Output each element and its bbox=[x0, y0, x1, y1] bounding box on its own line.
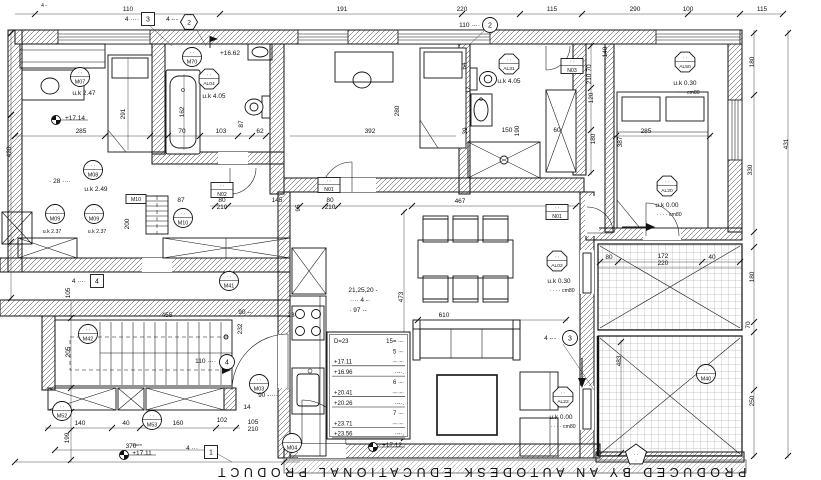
stair-table-level: +16.96 bbox=[334, 370, 353, 376]
marker-M70: · ·M70 bbox=[183, 48, 202, 67]
svg-text:M52: M52 bbox=[57, 413, 68, 419]
window-1 bbox=[58, 30, 150, 44]
svg-text:· ·: · · bbox=[181, 212, 186, 218]
annotation-text: 483 bbox=[616, 355, 623, 366]
stair-table-note: ·-··-· bbox=[392, 360, 404, 366]
svg-text:· ·: · · bbox=[327, 179, 332, 185]
annotation-text: 95 bbox=[295, 204, 302, 212]
marker-1: 1 bbox=[205, 446, 218, 459]
annotation-text: 180 bbox=[749, 271, 756, 282]
annotation-text: 210 bbox=[586, 73, 593, 84]
svg-text:· ·: · · bbox=[561, 391, 566, 397]
svg-text:AL04: AL04 bbox=[203, 81, 215, 87]
stair-table-level: +17.11 bbox=[334, 360, 353, 366]
svg-text:N01: N01 bbox=[552, 214, 562, 220]
marker-M08: · ·M08 bbox=[84, 161, 103, 180]
annotation-text: 467 bbox=[455, 198, 466, 205]
window-4 bbox=[656, 30, 740, 44]
stair-table-level: +20.26 bbox=[334, 401, 353, 407]
annotation-text: u.k 4.05 bbox=[497, 78, 521, 85]
bed-single-2 bbox=[420, 48, 466, 148]
annotation-text: 387 bbox=[617, 136, 624, 147]
stair-table-level: +23.56 bbox=[334, 432, 353, 438]
svg-text:· ·: · · bbox=[555, 206, 560, 212]
annotation-text: 190 bbox=[514, 125, 521, 136]
annotation-text: 232 bbox=[237, 323, 244, 334]
annotation-text: 87 bbox=[177, 197, 185, 204]
stair-table-note: 5 ·-· bbox=[393, 349, 404, 355]
svg-text:· ·: · · bbox=[704, 368, 709, 374]
annotation-text: 110 bbox=[123, 6, 134, 13]
marker-M42: · ·M42 bbox=[79, 325, 98, 344]
annotation-text: 80 bbox=[218, 197, 226, 204]
svg-text:4: 4 bbox=[225, 360, 229, 367]
annotation-text: 40 bbox=[708, 254, 716, 261]
stair-table-level: +23.71 bbox=[334, 421, 353, 427]
svg-text:· ·: · · bbox=[290, 437, 295, 443]
svg-text:· ·: · · bbox=[507, 58, 512, 64]
marker-N03: · ·N03 bbox=[561, 59, 583, 74]
annotation-text: · 97 ·- bbox=[349, 307, 366, 314]
annotation-text: 14 bbox=[243, 404, 251, 411]
annotation-text: 140 bbox=[75, 420, 86, 427]
annotation-text: 103 bbox=[216, 128, 227, 135]
marker-M09: · ·M09 bbox=[85, 205, 104, 224]
annotation-text: 87 bbox=[238, 120, 245, 128]
annotation-text: 140 bbox=[602, 46, 609, 57]
annotation-text: 70 bbox=[178, 128, 186, 135]
svg-text:M04: M04 bbox=[287, 445, 298, 451]
annotation-text: 90 -···· bbox=[258, 392, 278, 399]
marker-AL02: · ·AL02 bbox=[547, 251, 567, 271]
marker-2: 2 bbox=[181, 15, 198, 30]
annotation-text: · · · · cm80 bbox=[674, 90, 699, 96]
svg-text:M40: M40 bbox=[701, 376, 712, 382]
annotation-text: 39 bbox=[462, 127, 469, 135]
svg-text:M07: M07 bbox=[75, 79, 86, 85]
annotation-text: · 28 ···· bbox=[49, 178, 71, 185]
watermark-text: PRODUCED BY AN AUTODESK EDUCATIONAL PROD… bbox=[214, 465, 747, 479]
annotation-text: 473 bbox=[398, 291, 405, 302]
marker-4: 4 bbox=[91, 275, 104, 288]
stair-table-note: ··-·. bbox=[394, 401, 404, 407]
svg-text:2: 2 bbox=[187, 19, 191, 26]
annotation-text: 210 bbox=[248, 426, 259, 433]
bed-single-1 bbox=[108, 55, 152, 152]
annotation-text: u.k 0.00 bbox=[549, 414, 573, 421]
annotation-text: · · · · cm80 bbox=[656, 212, 681, 218]
marker-AL50: · ·AL50 bbox=[675, 52, 695, 72]
annotation-text: 120 bbox=[588, 92, 595, 103]
dining-table bbox=[418, 240, 513, 278]
annotation-text: +17.12 bbox=[382, 442, 402, 449]
stair-table-level: D=23 bbox=[334, 339, 349, 345]
svg-text:· ·: · · bbox=[92, 208, 97, 214]
annotation-text: 70 bbox=[586, 64, 593, 72]
marker-M10: M10 bbox=[126, 195, 146, 204]
marker-M52: · ·M52 bbox=[53, 402, 72, 421]
svg-text:· ·: · · bbox=[78, 71, 83, 77]
annotation-text: u.k 2.49 bbox=[84, 186, 108, 193]
annotation-text: +17.14 bbox=[65, 115, 85, 122]
annotation-text: 290 bbox=[630, 6, 641, 13]
marker-M07: · ·M07 bbox=[71, 68, 90, 87]
annotation-text: · · · · cm80 bbox=[550, 424, 575, 430]
annotation-text: ···· 4 -· bbox=[350, 297, 370, 304]
annotation-text: u.k 2.47 bbox=[72, 90, 96, 97]
marker-N02: · ·N02 bbox=[211, 183, 233, 198]
marker-4: 4 bbox=[220, 355, 235, 370]
annotation-text: 180 bbox=[749, 56, 756, 67]
annotation-text: 210 bbox=[217, 204, 228, 211]
svg-text:1: 1 bbox=[209, 450, 213, 457]
annotation-text: 180 bbox=[590, 133, 597, 144]
stair-table-note: ·-··-· bbox=[392, 391, 404, 397]
terrace-upper bbox=[598, 244, 742, 330]
svg-text:· ·: · · bbox=[570, 60, 575, 66]
annotation-text: 145 bbox=[272, 197, 283, 204]
svg-text:3: 3 bbox=[146, 17, 150, 24]
annotation-text: 455 bbox=[162, 312, 173, 319]
annotation-text: 285 bbox=[76, 128, 87, 135]
annotation-text: 102 bbox=[217, 417, 228, 424]
annotation-text: u.k 4.05 bbox=[202, 93, 226, 100]
annotation-text: 64 bbox=[461, 62, 468, 70]
stair-table-note: ··-·. bbox=[394, 432, 404, 438]
svg-text:· ·: · · bbox=[220, 184, 225, 190]
svg-text:· ·: · · bbox=[227, 275, 232, 281]
annotation-text: 370 bbox=[126, 443, 137, 450]
marker-N01: · ·N01 bbox=[546, 205, 568, 220]
svg-text:2: 2 bbox=[488, 23, 492, 30]
marker-3: 3 bbox=[563, 331, 578, 346]
annotation-text: 23 bbox=[287, 312, 295, 319]
annotation-text: 115 bbox=[757, 6, 768, 13]
svg-text:M09: M09 bbox=[50, 216, 61, 222]
marker-M41: · ·M41 bbox=[220, 272, 239, 291]
annotation-text: 285 bbox=[641, 128, 652, 135]
annotation-text: 40 bbox=[122, 420, 130, 427]
annotation-text: u.k 0.00 bbox=[655, 202, 679, 209]
annotation-text: 4 ···· bbox=[125, 16, 139, 23]
svg-text:AL20: AL20 bbox=[661, 188, 673, 194]
annotation-text: 62 bbox=[256, 128, 264, 135]
svg-text:· ·: · · bbox=[555, 255, 560, 261]
stair-table-note: 7 ·-· bbox=[393, 411, 404, 417]
annotation-text: 80 bbox=[605, 254, 613, 261]
annotation-text: 250 bbox=[749, 395, 756, 406]
annotation-text: 199 bbox=[64, 432, 71, 443]
svg-text:M53: M53 bbox=[147, 422, 158, 428]
floor-plan-page: D=2315= ·-·5 ·-·+17.11·-··-·+16.96··-·.6… bbox=[0, 0, 821, 480]
svg-text:· ·: · · bbox=[665, 180, 670, 186]
svg-text:M10: M10 bbox=[178, 220, 189, 226]
annotation-text: 200 bbox=[124, 218, 131, 229]
stair-table-note: 15= ·-· bbox=[386, 339, 404, 345]
annotation-text: 80 bbox=[326, 197, 334, 204]
annotation-text: 4 -·- bbox=[166, 16, 178, 23]
annotation-text: 220 bbox=[457, 6, 468, 13]
svg-text:· ·: · · bbox=[257, 378, 262, 384]
svg-text:· ·: · · bbox=[91, 164, 96, 170]
annotation-text: 150 bbox=[502, 127, 513, 134]
annotation-text: 280 bbox=[394, 105, 401, 116]
annotation-text: 610 bbox=[439, 312, 450, 319]
annotation-text: 4 ··· bbox=[186, 445, 198, 452]
svg-text:N03: N03 bbox=[567, 68, 577, 74]
annotation-text: 210 bbox=[325, 204, 336, 211]
svg-text:M10: M10 bbox=[131, 197, 141, 203]
annotation-text: u.k 0.30 bbox=[673, 80, 697, 87]
svg-text:· ·: · · bbox=[190, 51, 195, 57]
annotation-text: 110 ·-·· bbox=[195, 358, 216, 365]
svg-text:· ·: · · bbox=[683, 56, 688, 62]
annotation-text: u.k 2.37 bbox=[43, 229, 62, 235]
annotation-text: 420 bbox=[6, 146, 13, 157]
annotation-text: 90 --· bbox=[238, 309, 254, 316]
annotation-text: +17.11 bbox=[132, 450, 152, 457]
annotation-text: 17 bbox=[465, 86, 472, 94]
svg-text:AL31: AL31 bbox=[503, 66, 515, 72]
marker-AL04: · ·AL04 bbox=[199, 69, 219, 89]
svg-text:M09: M09 bbox=[89, 216, 100, 222]
annotation-text: 110 ·-·· bbox=[459, 22, 480, 29]
svg-text:· ·: · · bbox=[53, 208, 58, 214]
terrace-lower bbox=[598, 336, 742, 456]
svg-text:AL22: AL22 bbox=[557, 399, 569, 405]
svg-text:· ·: · · bbox=[207, 73, 212, 79]
svg-text:M70: M70 bbox=[187, 59, 198, 65]
annotation-text: · · · · cm80 bbox=[549, 288, 574, 294]
marker-AL22: · ·AL22 bbox=[553, 387, 573, 407]
annotation-text: 291 bbox=[120, 108, 127, 119]
svg-text:M08: M08 bbox=[88, 172, 99, 178]
svg-text:N01: N01 bbox=[324, 187, 334, 193]
marker-AL20: · ·AL20 bbox=[657, 176, 677, 196]
annotation-text: 160 bbox=[173, 420, 184, 427]
annotation-text: 60 bbox=[553, 127, 561, 134]
window-2 bbox=[298, 30, 348, 44]
annotation-text: 330 bbox=[747, 164, 754, 175]
svg-text:· ·: · · bbox=[150, 414, 155, 420]
annotation-text: u.k 2.37 bbox=[88, 229, 107, 235]
window-3 bbox=[398, 30, 490, 44]
stair-level-table: D=2315= ·-·5 ·-·+17.11·-··-·+16.96··-·.6… bbox=[327, 332, 410, 439]
marker-AL31: · ·AL31 bbox=[499, 54, 519, 74]
marker-M40: · ·M40 bbox=[697, 365, 716, 384]
annotation-text: 431 bbox=[783, 138, 790, 149]
marker-M10: · ·M10 bbox=[174, 209, 193, 228]
svg-text:M42: M42 bbox=[83, 336, 94, 342]
annotation-text: 100 bbox=[683, 6, 694, 13]
svg-text:· ·: · · bbox=[60, 405, 65, 411]
stair-table-level: +20.41 bbox=[334, 391, 353, 397]
marker-3: 3 bbox=[142, 13, 155, 26]
annotation-text: 21,25,20 - bbox=[348, 287, 377, 294]
marker-N01: · ·N01 bbox=[318, 178, 340, 193]
annotation-text: 115 bbox=[547, 6, 558, 13]
marker-M03: · ·M03 bbox=[250, 375, 269, 394]
annotation-text: +16.62 bbox=[220, 50, 240, 57]
annotation-text: 4 ···· bbox=[72, 278, 86, 285]
svg-text:AL50: AL50 bbox=[679, 64, 691, 70]
stair-table-note: 6 ·-· bbox=[393, 380, 404, 386]
annotation-text: 191 bbox=[337, 6, 348, 13]
annotation-text: 172 bbox=[658, 253, 669, 260]
annotation-text: 70 bbox=[745, 321, 752, 329]
annotation-text: 4 -·- bbox=[544, 335, 556, 342]
svg-text:AL02: AL02 bbox=[551, 263, 563, 269]
window-5 bbox=[728, 100, 742, 160]
floor-plan-drawing: D=2315= ·-·5 ·-·+17.11·-··-·+16.96··-·.6… bbox=[0, 0, 821, 480]
marker-M04: · ·M04 bbox=[283, 434, 302, 453]
annotation-text: 105 bbox=[65, 287, 72, 298]
annotation-text: 205 bbox=[65, 346, 72, 357]
annotation-text: 4 - bbox=[41, 3, 47, 9]
annotation-text: 105 bbox=[248, 419, 259, 426]
stair-table-note: ··-·. bbox=[394, 370, 404, 376]
marker-M53: · ·M53 bbox=[143, 411, 162, 430]
stair-table-note: ·-··-· bbox=[392, 421, 404, 427]
svg-text:· ·: · · bbox=[86, 328, 91, 334]
tall-cabinet bbox=[546, 90, 576, 172]
annotation-text: 220 bbox=[658, 260, 669, 267]
annotation-text: u.k 0.30 bbox=[547, 278, 571, 285]
annotation-text: 392 bbox=[365, 128, 376, 135]
annotation-text: 162 bbox=[179, 106, 186, 117]
marker-2: 2 bbox=[483, 18, 498, 33]
svg-text:3: 3 bbox=[568, 336, 572, 343]
svg-text:M41: M41 bbox=[224, 283, 235, 289]
marker-M09: · ·M09 bbox=[46, 205, 65, 224]
svg-text:4: 4 bbox=[95, 279, 99, 286]
